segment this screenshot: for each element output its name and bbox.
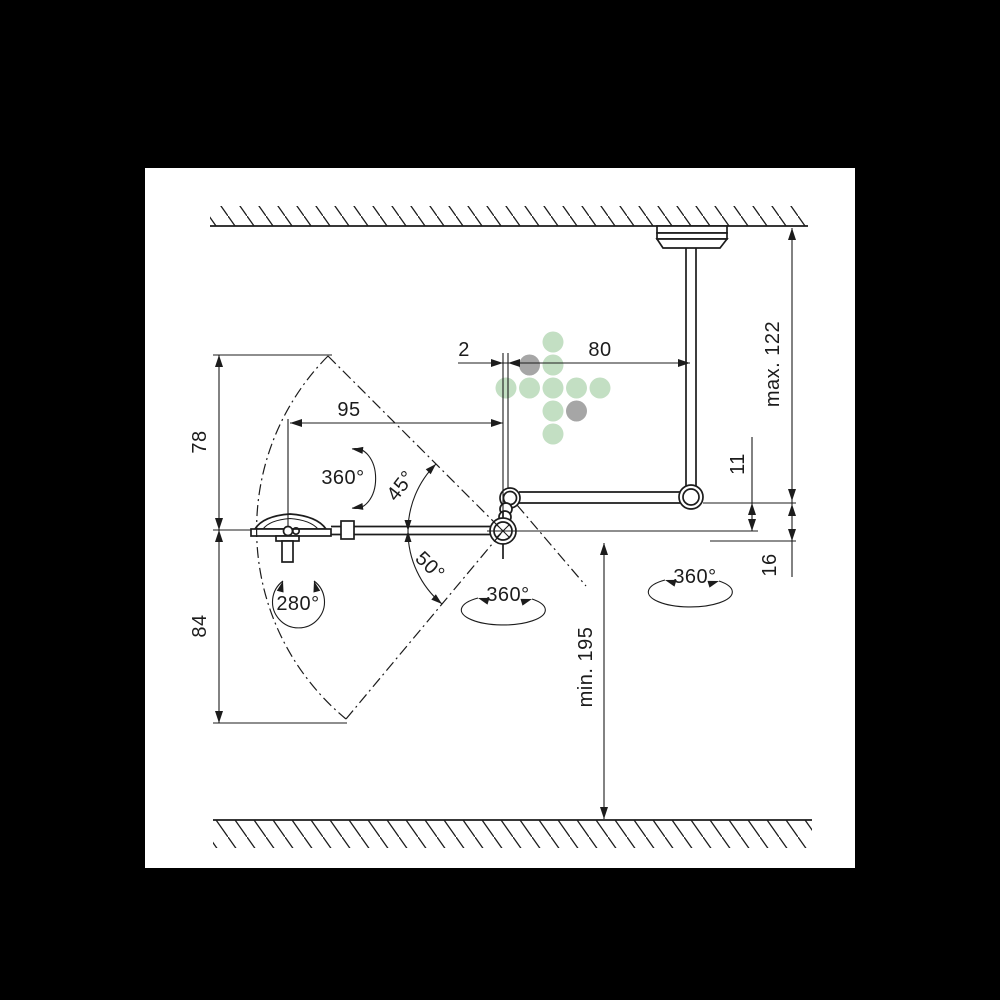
support-pole — [686, 248, 696, 487]
label-dim-78: 78 — [189, 430, 211, 453]
floor-hatch — [213, 820, 812, 848]
screenshot-stage: 2 80 95 78 84 max. 122 11 16 min. 195 36… — [0, 0, 1000, 1000]
label-head-spin-360: 360° — [321, 467, 364, 489]
label-dim-84: 84 — [189, 614, 211, 637]
tilt-45-line — [328, 356, 503, 531]
envelope-arc — [257, 356, 346, 719]
label-dim-min195: min. 195 — [575, 627, 597, 708]
technical-drawing: 2 80 95 78 84 max. 122 11 16 min. 195 36… — [0, 0, 1000, 1000]
label-dim-16: 16 — [759, 553, 781, 576]
swivel-envelope — [257, 356, 586, 719]
label-swivel-280: 280° — [276, 593, 319, 615]
label-dim-80: 80 — [588, 339, 611, 361]
label-tilt-50: 50° — [411, 547, 449, 585]
label-dim-max122: max. 122 — [762, 321, 784, 407]
label-dim-95: 95 — [337, 399, 360, 421]
ceiling-canopy — [657, 226, 727, 248]
ceiling-hatch — [210, 206, 808, 226]
label-hub-360: 360° — [486, 584, 529, 606]
dimension-labels: 2 80 95 78 84 max. 122 11 16 min. 195 — [189, 321, 784, 707]
upper-arm — [519, 492, 680, 503]
lamp-head — [251, 514, 331, 562]
tilt-axis-extension — [517, 505, 586, 586]
label-dim-11: 11 — [727, 453, 749, 475]
label-pole-360: 360° — [673, 566, 716, 588]
label-dim-2: 2 — [458, 339, 470, 361]
elbow-joint — [679, 485, 703, 509]
lamp-arm — [331, 521, 491, 539]
